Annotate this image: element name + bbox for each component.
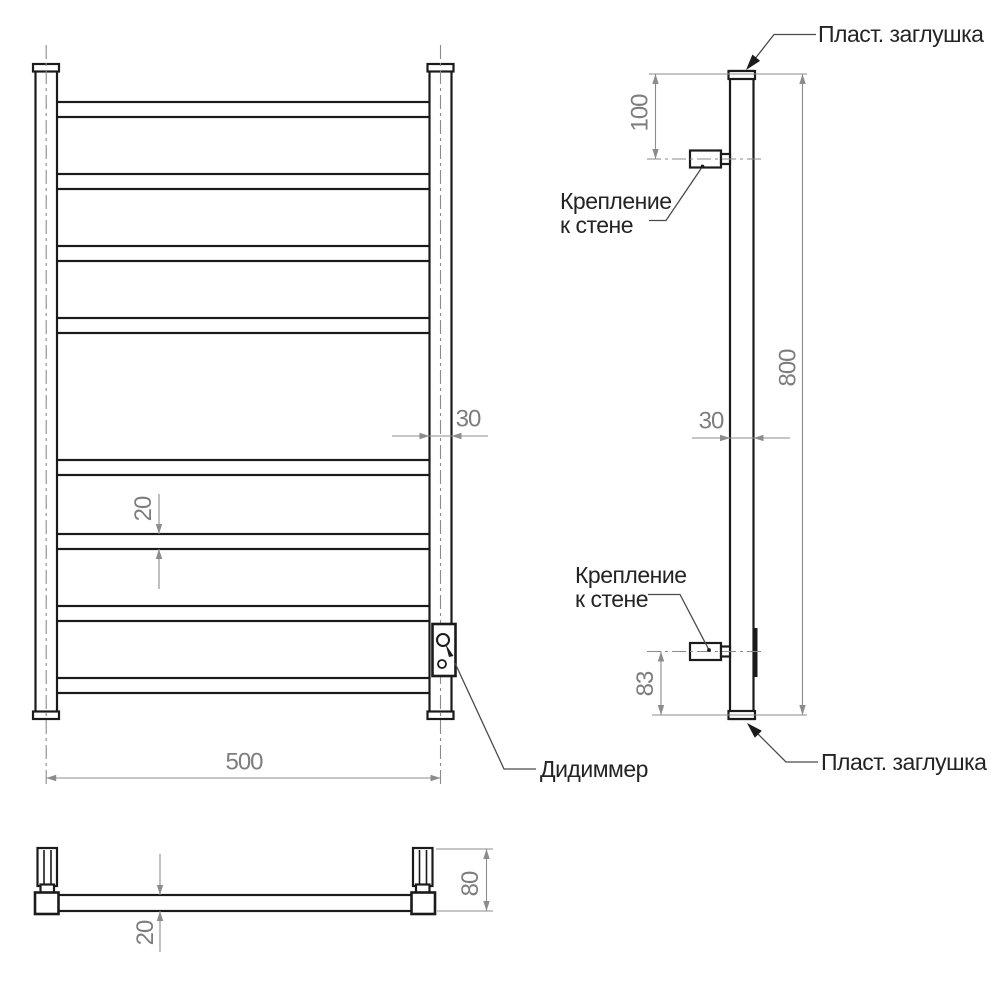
front-width-dimension: 500 [46,749,440,782]
side-post [730,71,754,719]
bottom-right-end [412,848,436,914]
front-view: 20 30 500 Дидиммер [33,45,648,786]
bottom-tube-depth-value: 20 [132,920,159,945]
rung-2 [57,174,432,189]
side-view: 100 800 30 83 Пласт. заглушка [560,21,987,775]
technical-drawing-page: 20 30 500 Дидиммер [0,0,1000,1000]
front-width-value: 500 [225,749,263,776]
rung-5 [57,460,432,475]
side-depth-value: 30 [699,408,724,435]
dimmer-label: Дидиммер [540,756,648,782]
top-mount-offset-dimension: 100 [627,74,659,159]
rung-8 [57,678,432,693]
bottom-mount-label-line1: Крепление [575,562,687,588]
bottom-left-end [35,848,59,914]
top-plug-callout: Пласт. заглушка [746,21,984,70]
rung-6 [57,534,432,549]
dimmer-indicator [438,660,446,668]
rung-3 [57,246,432,261]
dimmer-knob [437,634,449,646]
rung-4 [57,318,432,333]
front-rungs [57,102,432,693]
height-value: 800 [775,349,802,387]
bottom-mount-callout: Крепление к стене [575,562,711,652]
height-dimension: 800 [775,74,806,715]
bottom-overall-depth-dimension: 80 [436,849,493,911]
towel-rail-drawing: 20 30 500 Дидиммер [0,0,1000,1000]
bottom-mount-offset-value: 83 [632,671,659,696]
top-plug-label: Пласт. заглушка [818,21,984,47]
top-mount-label-line1: Крепление [560,188,672,214]
rung-7 [57,606,432,621]
front-post-width-value: 30 [456,406,481,433]
right-end-cap [412,893,436,915]
dimmer-box [433,624,456,676]
bottom-mount-offset-dimension: 83 [632,652,664,716]
left-end-cap [35,893,59,915]
side-dimmer-profile [754,628,758,677]
left-wall-bracket [38,848,58,886]
bottom-bar [57,895,413,911]
bottom-plug-callout: Пласт. заглушка [747,723,987,775]
top-mount-offset-value: 100 [627,94,654,132]
top-mount-callout: Крепление к стене [560,165,704,238]
rung-1 [57,102,432,117]
top-mount-label-line2: к стене [560,212,633,238]
dimmer-leader-line [455,663,536,769]
right-wall-bracket [413,848,433,886]
bottom-overall-depth-value: 80 [457,871,484,896]
bottom-plug-label: Пласт. заглушка [821,749,987,775]
front-rung-thickness-value: 20 [130,496,157,521]
side-top-plug [729,71,756,79]
bottom-view: 20 80 [35,848,493,952]
bottom-mount-label-line2: к стене [575,586,648,612]
